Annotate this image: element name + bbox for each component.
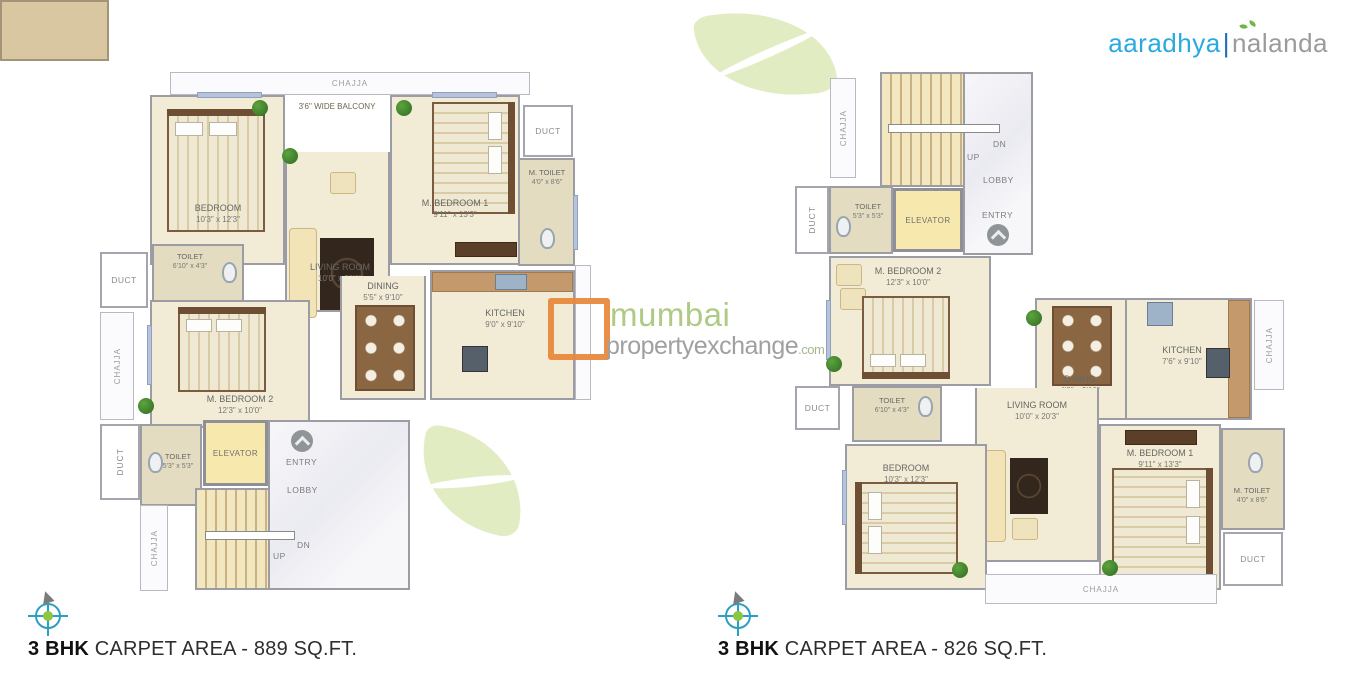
stair-rail xyxy=(888,124,1000,133)
room-label-m-toilet: M. TOILET 4'0" x 8'6" xyxy=(1234,486,1270,505)
pillow-icon xyxy=(868,492,882,520)
duct: DUCT xyxy=(795,386,840,430)
window xyxy=(842,470,847,525)
chajja-label: CHAJJA xyxy=(1083,585,1119,594)
pillow-icon xyxy=(870,354,896,367)
duct-label: DUCT xyxy=(807,206,817,234)
floor-plan-page: aaradhya|nalanda CHAJJA BEDROOM 10'3" x … xyxy=(0,0,1346,680)
toilet-fixture-icon xyxy=(918,396,933,417)
bed-icon xyxy=(862,296,950,374)
compass-icon xyxy=(720,598,756,634)
carpet-area-caption-right: 3 BHK CARPET AREA - 826 SQ.FT. xyxy=(718,638,1047,661)
elevator: ELEVATOR xyxy=(893,188,963,252)
chajja-label: CHAJJA xyxy=(1265,327,1274,363)
stove-icon xyxy=(1206,348,1230,378)
pillow-icon xyxy=(900,354,926,367)
watermark-name2: propertyexchange.com xyxy=(606,332,824,361)
watermark-logo-icon xyxy=(548,298,610,360)
armchair-icon xyxy=(1012,518,1038,540)
room-label-living: LIVING ROOM 10'0" x 20'3" xyxy=(1007,400,1067,422)
chajja-strip: CHAJJA xyxy=(985,574,1217,604)
room-label-toilet-upper: TOILET 5'3" x 5'3" xyxy=(853,202,884,221)
plant-icon xyxy=(1102,560,1118,576)
entry-label: ENTRY xyxy=(982,210,1013,220)
room-label-toilet-mid: TOILET 6'10" x 4'3" xyxy=(875,396,910,415)
watermark-tld: .com xyxy=(798,342,824,357)
chajja-strip: CHAJJA xyxy=(830,78,856,178)
rug-icon xyxy=(1010,458,1048,514)
entry-arrow-icon xyxy=(987,224,1009,246)
elevator-label: ELEVATOR xyxy=(905,216,950,225)
toilet-fixture-icon xyxy=(836,216,851,237)
plant-icon xyxy=(826,356,842,372)
armchair-icon xyxy=(836,264,862,286)
watermark-name: mumbai xyxy=(610,296,730,334)
duct-label: DUCT xyxy=(1240,554,1266,564)
room-label-m-bedroom-2: M. BEDROOM 2 12'3" x 10'0" xyxy=(875,266,942,288)
duct: DUCT xyxy=(1223,532,1283,586)
plant-icon xyxy=(1026,310,1042,326)
room-label-kitchen: KITCHEN 7'6" x 9'10" xyxy=(1162,345,1202,367)
duct-label: DUCT xyxy=(805,403,831,413)
chajja-label: CHAJJA xyxy=(839,110,848,146)
room-label-bedroom: BEDROOM 10'3" x 12'3" xyxy=(883,463,930,485)
caption-bhk: 3 BHK xyxy=(718,638,779,660)
wardrobe-icon xyxy=(1125,430,1197,445)
pillow-icon xyxy=(1186,480,1200,508)
bed-icon xyxy=(1112,468,1208,578)
room-m-toilet xyxy=(1221,428,1285,530)
bed-icon xyxy=(860,482,958,574)
pillow-icon xyxy=(1186,516,1200,544)
stairs-down-label: DN xyxy=(993,139,1006,149)
sink-icon xyxy=(1147,302,1173,326)
chajja-strip: CHAJJA xyxy=(1254,300,1284,390)
kitchen-counter-icon xyxy=(1228,300,1250,418)
duct: DUCT xyxy=(795,186,829,254)
stairs-up-label: UP xyxy=(967,152,980,162)
window xyxy=(826,300,831,360)
lobby-label: LOBBY xyxy=(983,175,1014,185)
caption-area: CARPET AREA - 826 SQ.FT. xyxy=(779,638,1047,660)
toilet-fixture-icon xyxy=(1248,452,1263,473)
plant-icon xyxy=(952,562,968,578)
pillow-icon xyxy=(868,526,882,554)
room-label-m-bedroom-1: M. BEDROOM 1 9'11" x 13'3" xyxy=(1127,448,1194,470)
